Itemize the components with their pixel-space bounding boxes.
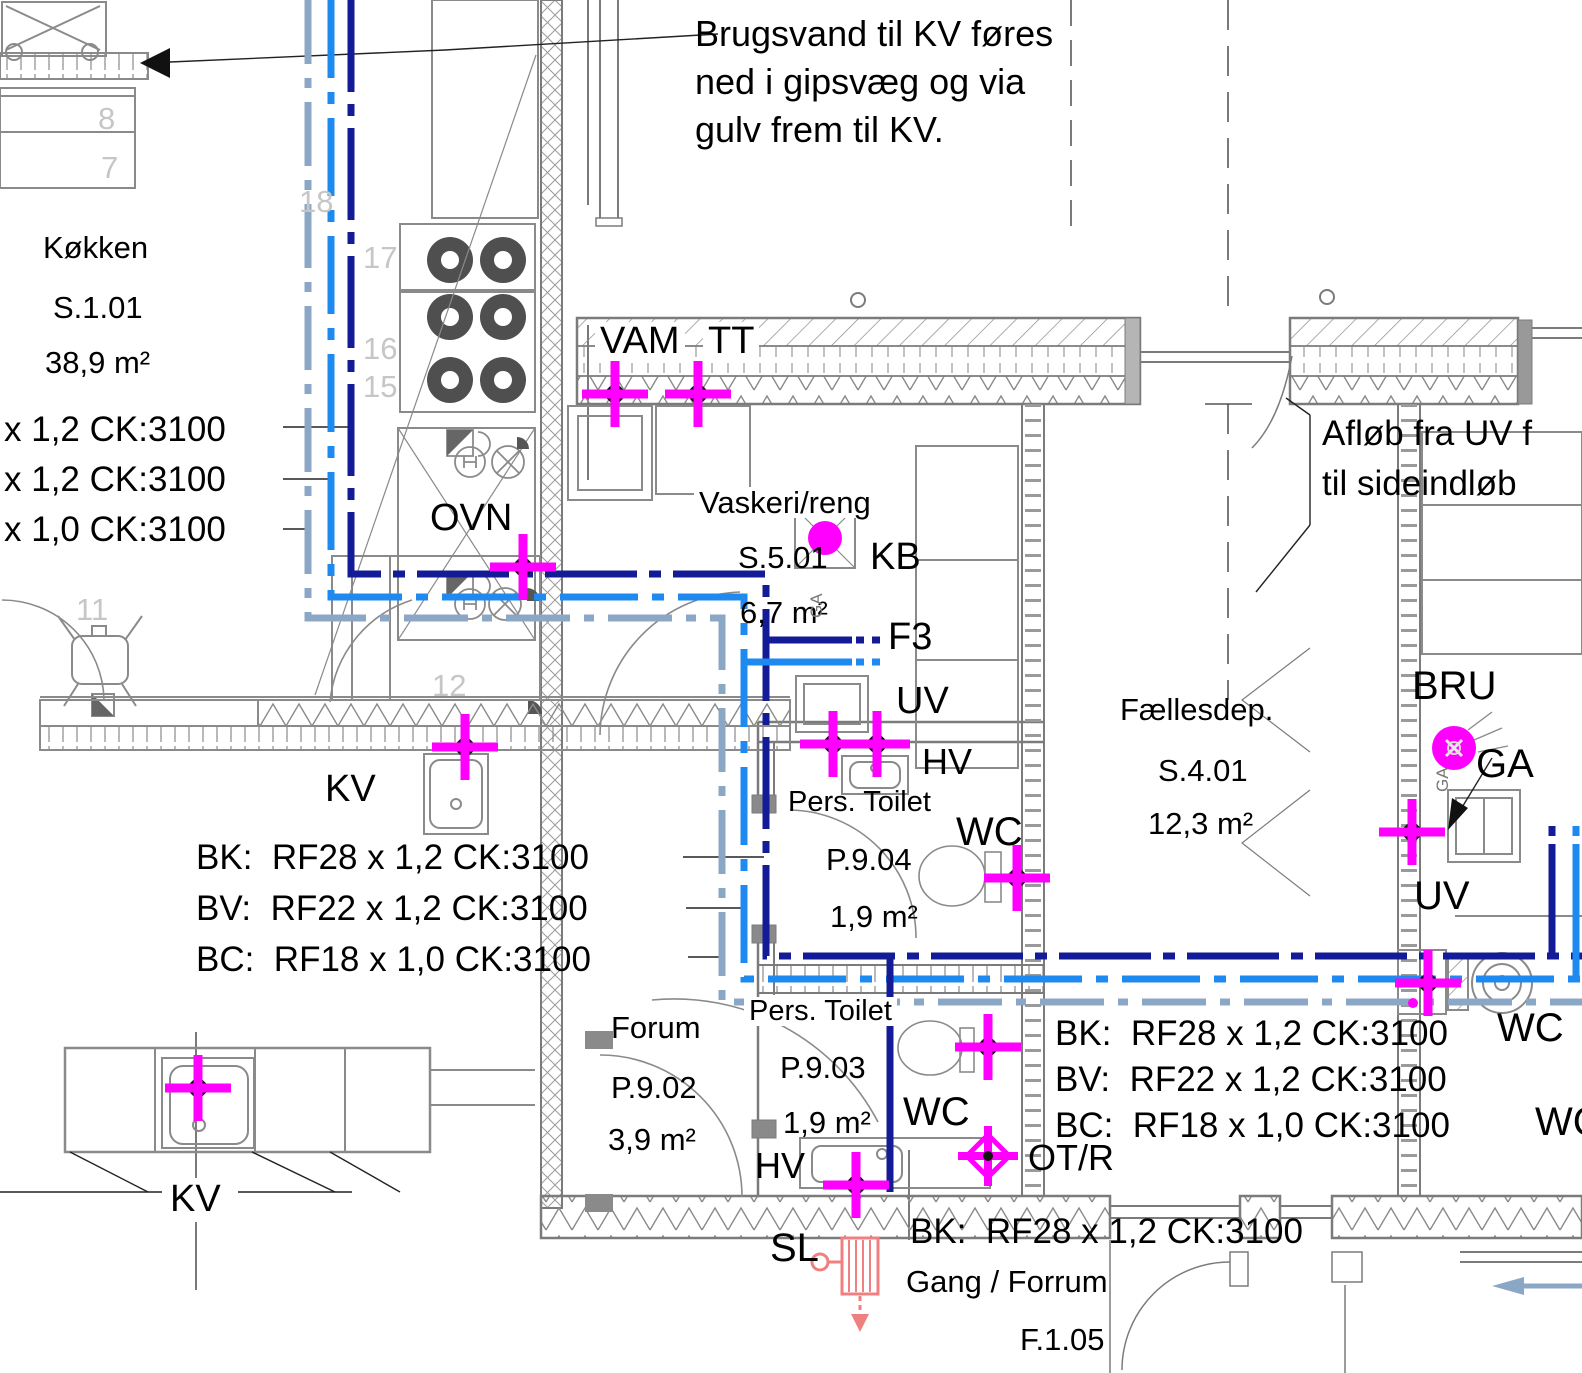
pipe-spec-left-1: x 1,2 CK:3100 [4,412,226,447]
tag-hv-904: HV [922,744,972,780]
pipe-spec-block-right-bc: BC: RF18 x 1,0 CK:3100 [1055,1108,1450,1143]
room-name-pt903: Pers. Toilet [744,997,897,1026]
drain-tag-ga-1: GA [808,593,825,618]
valve-otr [958,1126,1018,1186]
ref-number-11: 11 [76,594,108,625]
room-name-koekken: Køkken [43,232,148,263]
valve-uv-bru [1379,799,1445,865]
note-afloeb-line2: til sideindløb [1322,466,1517,501]
room-area-pt904: 1,9 m² [830,901,918,932]
pipe-spec-block-left-bv: BV: RF22 x 1,2 CK:3100 [196,891,588,926]
tag-kv-bottom: KV [170,1180,221,1218]
ref-number-8: 8 [98,103,115,134]
tag-tt: TT [703,322,759,360]
room-area-pt903: 1,9 m² [783,1107,871,1138]
note-brugsvand-line1: Brugsvand til KV føres [695,16,1053,52]
tag-kb: KB [870,538,921,576]
equipment-table [2,2,106,60]
pipe-spec-block-right-bk: BK: RF28 x 1,2 CK:3100 [1055,1016,1448,1051]
tag-ga: GA [1476,744,1534,784]
tag-bru: BRU [1412,666,1496,706]
note-afloeb-line1: Afløb fra UV f [1322,416,1532,451]
ref-number-15: 15 [363,371,397,402]
pipe-spec-left-2: x 1,2 CK:3100 [4,462,226,497]
pipe-spec-block-left-bc: BC: RF18 x 1,0 CK:3100 [196,942,591,977]
tag-kv-top: KV [325,770,376,808]
ref-number-7: 7 [101,152,118,183]
tag-f3: F3 [888,618,932,656]
ref-number-18: 18 [299,186,333,217]
pipe-spec-left-3: x 1,0 CK:3100 [4,512,226,547]
tag-wc-903: WC [903,1092,970,1132]
ref-number-12: 12 [432,670,466,701]
tag-sl: SL [770,1228,819,1268]
sink-kv-top [424,754,488,834]
room-code-pt903: P.9.03 [780,1052,866,1083]
room-code-forum: P.9.02 [611,1072,697,1103]
room-name-faellesdep: Fællesdep. [1120,694,1273,725]
kitchen-counter [40,697,790,750]
room-name-forum: Forum [611,1012,701,1043]
valve-wc-903 [955,1014,1021,1080]
pipe-spec-block-left-bk: BK: RF28 x 1,2 CK:3100 [196,840,589,875]
radiator-sl [812,1238,878,1332]
tag-uv-bru: UV [1414,876,1470,916]
room-code-vaskeri: S.5.01 [738,542,828,573]
drain-ga [1432,726,1476,770]
tag-wc-right-partial: WC [1535,1102,1582,1142]
room-area-faellesdep: 12,3 m² [1148,808,1253,839]
tag-uv-vaskeri: UV [896,682,949,720]
tag-hv-903: HV [755,1148,805,1184]
room-area-forum: 3,9 m² [608,1124,696,1155]
room-name-pt904: Pers. Toilet [788,788,931,817]
room-name-gang: Gang / Forrum [906,1266,1108,1297]
tag-vam: VAM [595,322,685,360]
counter-bottom-left [65,1048,535,1152]
pipe-spec-block-right-bv: BV: RF22 x 1,2 CK:3100 [1055,1062,1447,1097]
steel-arrow [1492,1277,1524,1295]
drain-tag-ga-2: GA [1434,767,1451,792]
room-code-faellesdep: S.4.01 [1158,755,1248,786]
note-brugsvand-line2: ned i gipsvæg og via [695,64,1025,100]
room-name-vaskeri: Vaskeri/reng [694,487,876,518]
valve-kv-bottom [165,1055,231,1121]
tag-otr: OT/R [1028,1140,1114,1176]
tag-wc-right: WC [1497,1008,1564,1048]
room-code-pt904: P.9.04 [826,844,912,875]
magenta-dot [1408,998,1418,1008]
note-brugsvand-line3: gulv frem til KV. [695,112,944,148]
ref-number-16: 16 [363,333,397,364]
room-code-koekken: S.1.01 [53,292,143,323]
room-area-koekken: 38,9 m² [45,347,150,378]
pipe-spec-bottom: BK: RF28 x 1,2 CK:3100 [910,1214,1303,1249]
ref-number-17: 17 [363,242,397,273]
tag-wc-904: WC [956,812,1023,852]
tag-ovn: OVN [430,499,512,537]
floorplan-canvas: Brugsvand til KV føres ned i gipsvæg og … [0,0,1582,1373]
sink-kv-bottom [162,1058,254,1148]
room-code-gang: F.1.05 [1020,1324,1104,1355]
